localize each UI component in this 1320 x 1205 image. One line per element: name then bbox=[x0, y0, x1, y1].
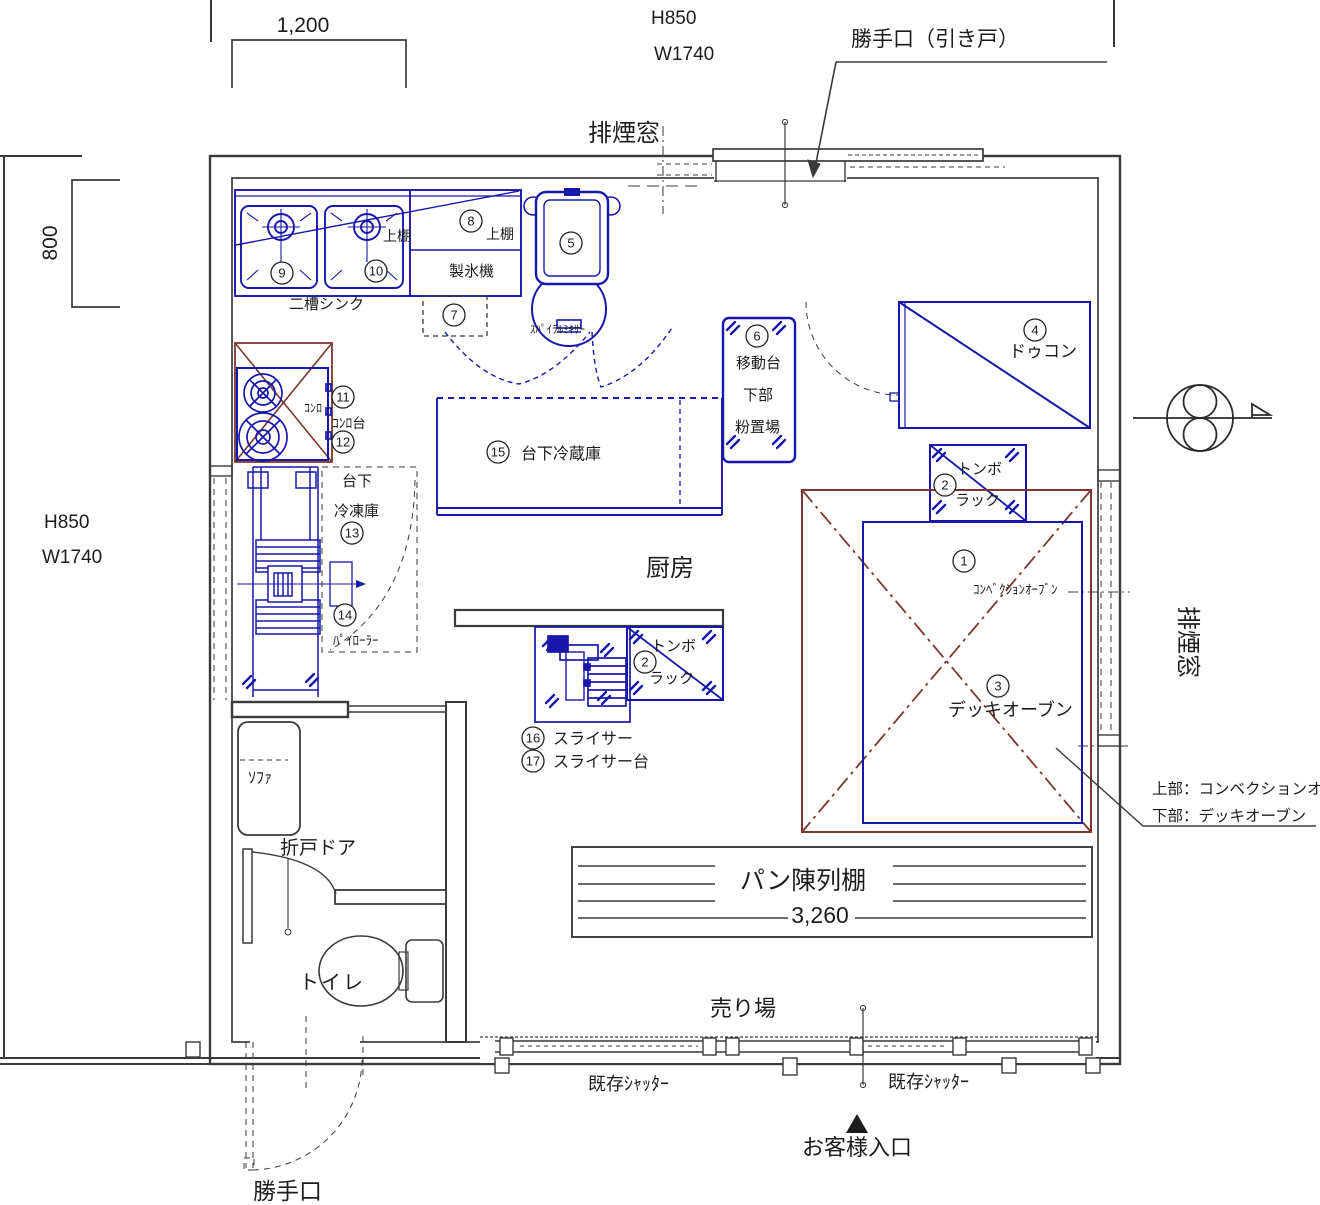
marker-4: 4 bbox=[1024, 319, 1046, 341]
top-window-width: W1740 bbox=[654, 44, 714, 65]
marker-9-number: 9 bbox=[278, 266, 285, 281]
marker-3-number: 3 bbox=[994, 679, 1001, 694]
marker-11: 11 bbox=[332, 386, 354, 408]
back-door-top-label: 勝手口（引き戸） bbox=[851, 28, 1019, 51]
spiral-mixer-label: ｽﾊﾟｲﾗﾙﾐｷｻｰ bbox=[530, 323, 585, 336]
marker-17-number: 17 bbox=[526, 754, 540, 769]
kitchen-label: 厨房 bbox=[646, 555, 694, 582]
left-wall-window bbox=[210, 466, 232, 700]
tombo-upper-line2: ラック bbox=[955, 492, 1000, 509]
fridge-label: 台下冷蔵庫 bbox=[521, 445, 601, 463]
sales-floor-label: 売り場 bbox=[710, 996, 776, 1021]
tombo-upper-line1: トンボ bbox=[957, 461, 1002, 478]
marker-16-number: 16 bbox=[526, 731, 540, 746]
dimension-1200 bbox=[232, 40, 406, 88]
pie-roller-clearance bbox=[322, 467, 417, 652]
back-door-bottom-label: 勝手口 bbox=[253, 1178, 322, 1204]
marker-1-number: 1 bbox=[960, 554, 967, 569]
existing-shutter-right-label: 既存ｼｬｯﾀｰ bbox=[888, 1072, 969, 1092]
freezer-line2: 冷凍庫 bbox=[334, 503, 379, 520]
dough-conditioner bbox=[890, 302, 1090, 428]
upper-shelf-label-a: 上棚 bbox=[383, 228, 411, 244]
left-window-height: H850 bbox=[44, 512, 89, 533]
dim-1200: 1,200 bbox=[277, 14, 330, 37]
pie-roller-label: ﾊﾟｲﾛｰﾗｰ bbox=[333, 633, 379, 648]
dimension-800 bbox=[72, 180, 120, 307]
folding-door bbox=[243, 849, 336, 943]
double-sink-label: 二槽シンク bbox=[289, 296, 364, 313]
marker-8-number: 8 bbox=[467, 214, 474, 229]
marker-7-number: 7 bbox=[450, 308, 457, 323]
marker-15-number: 15 bbox=[491, 445, 505, 460]
top-window-height: H850 bbox=[651, 8, 696, 29]
spiral-mixer bbox=[524, 188, 620, 346]
marker-9: 9 bbox=[271, 262, 293, 284]
stove-stand-label: ｺﾝﾛ台 bbox=[332, 416, 366, 431]
service-counter bbox=[455, 610, 723, 626]
marker-4-number: 4 bbox=[1031, 323, 1038, 338]
slicer-stand-label: スライサー台 bbox=[553, 753, 649, 771]
mobile-table-line3: 粉置場 bbox=[735, 419, 780, 436]
folding-door-label: 折戸ドア bbox=[280, 837, 356, 859]
bread-shelf-label: パン陳列棚 bbox=[740, 867, 866, 895]
marker-5-number: 5 bbox=[567, 236, 574, 251]
toilet-fixture bbox=[319, 936, 443, 1006]
marker-11-number: 11 bbox=[336, 390, 350, 405]
tombo-lower-line1: トンボ bbox=[651, 638, 696, 655]
tombo-lower-line2: ラック bbox=[649, 670, 694, 687]
back-room-door-swing bbox=[806, 302, 899, 395]
marker-13-number: 13 bbox=[345, 526, 359, 541]
marker-6-number: 6 bbox=[753, 329, 760, 344]
existing-shutter-left-label: 既存ｼｬｯﾀｰ bbox=[588, 1074, 669, 1094]
marker-17: 17 bbox=[522, 750, 544, 772]
marker-16: 16 bbox=[522, 727, 544, 749]
freezer-line1: 台下 bbox=[342, 473, 372, 490]
mobile-table-line2: 下部 bbox=[743, 387, 773, 404]
convection-oven-label: ｺﾝﾍﾞｸｼｮﾝｵｰﾌﾞﾝ bbox=[973, 582, 1058, 597]
deck-oven-label: デッキオーブン bbox=[948, 699, 1073, 720]
stove-label: ｺﾝﾛ bbox=[304, 401, 322, 415]
convection-deck-oven bbox=[802, 490, 1091, 832]
toilet-label: トイレ bbox=[299, 972, 365, 994]
datum-symbol bbox=[1133, 385, 1272, 451]
slicer bbox=[535, 627, 630, 722]
floor-plan: 9 10 8 7 5 15 6 4 2 1 3 2 11 12 13 14 16… bbox=[0, 0, 1320, 1205]
entrance-arrow-icon bbox=[846, 1114, 868, 1133]
dim-800: 800 bbox=[39, 225, 62, 260]
upper-shelf-label-b: 上棚 bbox=[486, 226, 514, 242]
dough-conditioner-label: ドゥコン bbox=[1009, 342, 1077, 361]
marker-1: 1 bbox=[953, 550, 975, 572]
ice-maker-label: 製氷機 bbox=[449, 263, 494, 280]
marker-6: 6 bbox=[746, 325, 768, 347]
under-counter-fridge bbox=[437, 328, 722, 515]
sofa-label: ｿﾌｧ bbox=[248, 770, 272, 787]
slicer-label: スライサー bbox=[553, 731, 633, 748]
marker-10: 10 bbox=[365, 260, 387, 282]
marker-12: 12 bbox=[332, 431, 354, 453]
marker-3: 3 bbox=[987, 675, 1009, 697]
left-window-width: W1740 bbox=[42, 547, 102, 568]
marker-8: 8 bbox=[460, 210, 482, 232]
mobile-table-line1: 移動台 bbox=[736, 355, 781, 372]
dim-3260: 3,260 bbox=[791, 902, 849, 928]
smoke-window-right-label: 排煙窓 bbox=[1174, 606, 1201, 678]
marker-2a: 2 bbox=[934, 474, 956, 496]
marker-15: 15 bbox=[487, 441, 509, 463]
smoke-window-top-label: 排煙窓 bbox=[588, 120, 660, 147]
pie-roller bbox=[237, 467, 366, 697]
marker-14-number: 14 bbox=[338, 608, 352, 623]
marker-7: 7 bbox=[443, 304, 465, 326]
customer-entrance-label: お客様入口 bbox=[802, 1135, 912, 1160]
marker-5: 5 bbox=[560, 232, 582, 254]
marker-10-number: 10 bbox=[369, 264, 383, 279]
marker-13: 13 bbox=[341, 522, 363, 544]
marker-14: 14 bbox=[334, 604, 356, 626]
back-door-bottom bbox=[244, 1016, 363, 1170]
marker-2b-number: 2 bbox=[641, 655, 648, 670]
marker-12-number: 12 bbox=[336, 435, 350, 450]
oven-note-lower: 下部：デッキオーブン bbox=[1152, 806, 1306, 825]
oven-note-upper: 上部：コンベクションオ bbox=[1152, 780, 1320, 798]
marker-2a-number: 2 bbox=[941, 478, 948, 493]
